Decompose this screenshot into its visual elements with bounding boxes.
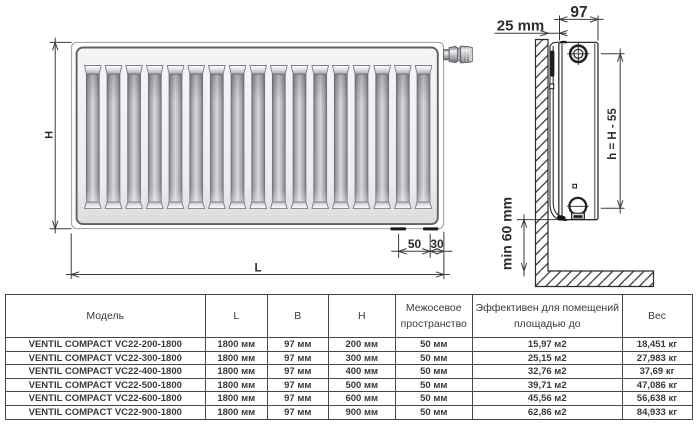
svg-text:L: L bbox=[254, 263, 261, 275]
svg-text:25 mm: 25 mm bbox=[497, 17, 545, 34]
svg-text:min 60 mm: min 60 mm bbox=[498, 197, 514, 270]
svg-text:97: 97 bbox=[570, 4, 587, 21]
svg-text:H: H bbox=[44, 131, 56, 139]
svg-text:h = H - 55: h = H - 55 bbox=[607, 108, 619, 160]
svg-text:50: 50 bbox=[408, 237, 422, 251]
svg-text:30: 30 bbox=[430, 237, 444, 251]
